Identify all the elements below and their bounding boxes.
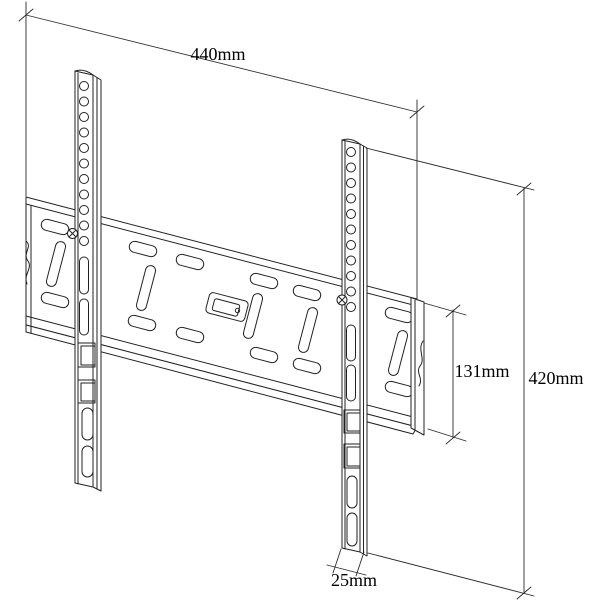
dimension-label-rail-width: 25mm (331, 570, 377, 590)
left-rail-screw (68, 229, 78, 239)
technical-drawing-canvas: 440mm 420mm 131mm 25mm (0, 0, 600, 600)
plate-right-endcap (411, 298, 424, 436)
dimension-25: 25mm (327, 549, 377, 590)
dimension-label-plate-height: 131mm (454, 361, 509, 381)
wall-mount-diagram: 440mm 420mm 131mm 25mm (0, 0, 600, 600)
right-rail-screw (337, 295, 347, 305)
right-vesa-rail (337, 139, 367, 556)
dimension-label-height: 420mm (528, 368, 583, 388)
dimension-131: 131mm (424, 303, 510, 444)
dimension-label-width: 440mm (190, 44, 245, 64)
